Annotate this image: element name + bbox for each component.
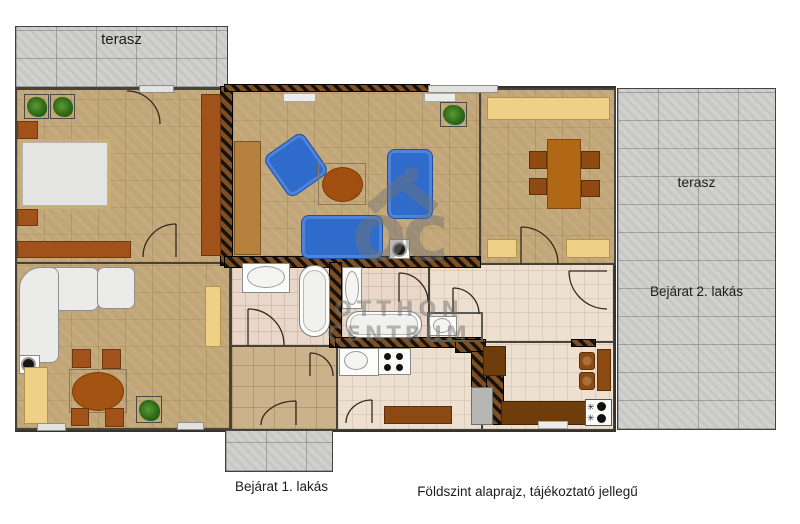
cabinet-1 [487, 239, 517, 258]
window-living [428, 85, 498, 93]
wall-living-top [224, 84, 430, 92]
dresser [17, 241, 131, 258]
plant-pot-2 [50, 94, 75, 119]
nightstand-2 [17, 209, 38, 226]
window-bedroom [139, 85, 174, 93]
burner-icon [396, 353, 403, 360]
toilet [433, 318, 451, 333]
chair-8 [105, 408, 124, 427]
dining-chair-1 [529, 151, 547, 169]
chair-6 [102, 349, 121, 369]
dining-chair-4 [581, 180, 600, 197]
room-hallway-1 [231, 346, 337, 430]
burner-star-icon: ✳ [587, 403, 595, 412]
cabinet-2 [566, 239, 610, 258]
kitchen2-table [597, 349, 611, 391]
plant-pot-3 [440, 102, 467, 127]
kitchen2-chair-2 [579, 372, 595, 390]
plant-pot-1 [24, 94, 49, 119]
kitchen1-stove [378, 348, 411, 375]
burner-star-icon: ✳ [587, 414, 595, 423]
sofa-2 [387, 149, 433, 219]
wall-kitchen2-top [571, 339, 596, 347]
window-living2-a [37, 423, 66, 431]
burner-icon [396, 364, 403, 371]
sofa-1 [301, 215, 383, 259]
coffee-table [322, 167, 363, 202]
plant-icon [139, 400, 160, 421]
burner-icon [384, 353, 391, 360]
bench [24, 367, 48, 424]
washbasin-2 [345, 271, 359, 305]
side-table-round [392, 242, 407, 257]
window-living2-b [177, 422, 204, 430]
terrace-right [617, 88, 776, 430]
corner-sofa-arm-left [19, 267, 59, 363]
burner-icon [597, 414, 606, 423]
plant-pot-4 [136, 396, 162, 423]
wardrobe [201, 94, 221, 256]
wall-bedroom-living [220, 86, 233, 266]
bed [19, 139, 111, 209]
dining-chair-2 [581, 151, 600, 169]
caption-label: Földszint alaprajz, tájékoztató jellegű [405, 484, 650, 499]
entrance-porch [225, 430, 333, 472]
plant-icon [443, 105, 465, 125]
kitchen1-table [384, 406, 452, 424]
terrace-top-label: terasz [15, 31, 228, 48]
washbasin-1 [247, 266, 285, 288]
bookcase [234, 141, 261, 255]
wall-bath1-bath2 [329, 262, 342, 348]
nightstand-1 [17, 121, 38, 139]
armchair-white [97, 267, 135, 309]
burner-icon [384, 364, 391, 371]
kitchen2-cabinet [483, 346, 506, 376]
entrance-1-label: Bejárat 1. lakás [189, 479, 374, 494]
kitchen2-chair-1 [579, 352, 595, 370]
chair-7 [71, 408, 89, 426]
dining-chair-3 [529, 178, 547, 195]
bathtub-2-basin [350, 314, 418, 335]
plant-icon [27, 97, 47, 117]
entrance-2-label: Bejárat 2. lakás [609, 284, 784, 299]
plant-icon [53, 97, 73, 117]
bathtub-1-basin [303, 270, 326, 332]
kitchen1-sink [344, 351, 368, 370]
sideboard [487, 97, 610, 120]
fridge [471, 387, 493, 425]
dimension-label [424, 93, 456, 102]
burner-icon [597, 402, 606, 411]
floor-plan-canvas: ✳ ✳ oc OTTHON CENTRUM tera [0, 0, 800, 524]
oval-table [72, 372, 124, 411]
dining-table [547, 139, 581, 209]
dimension-label [283, 93, 316, 102]
terrace-right-label: terasz [617, 174, 776, 190]
chair-5 [72, 349, 91, 368]
cabinet-3 [205, 286, 221, 347]
dimension-label [538, 421, 568, 429]
